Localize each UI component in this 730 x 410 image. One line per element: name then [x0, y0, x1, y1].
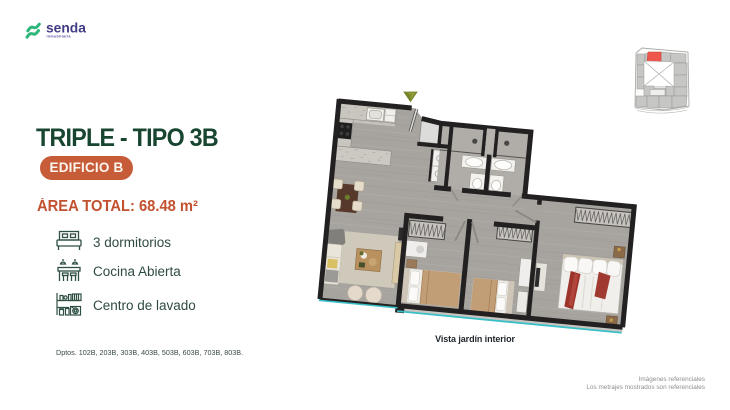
svg-text:senda: senda [46, 21, 86, 36]
svg-text:inmobiliaria: inmobiliaria [47, 35, 72, 39]
